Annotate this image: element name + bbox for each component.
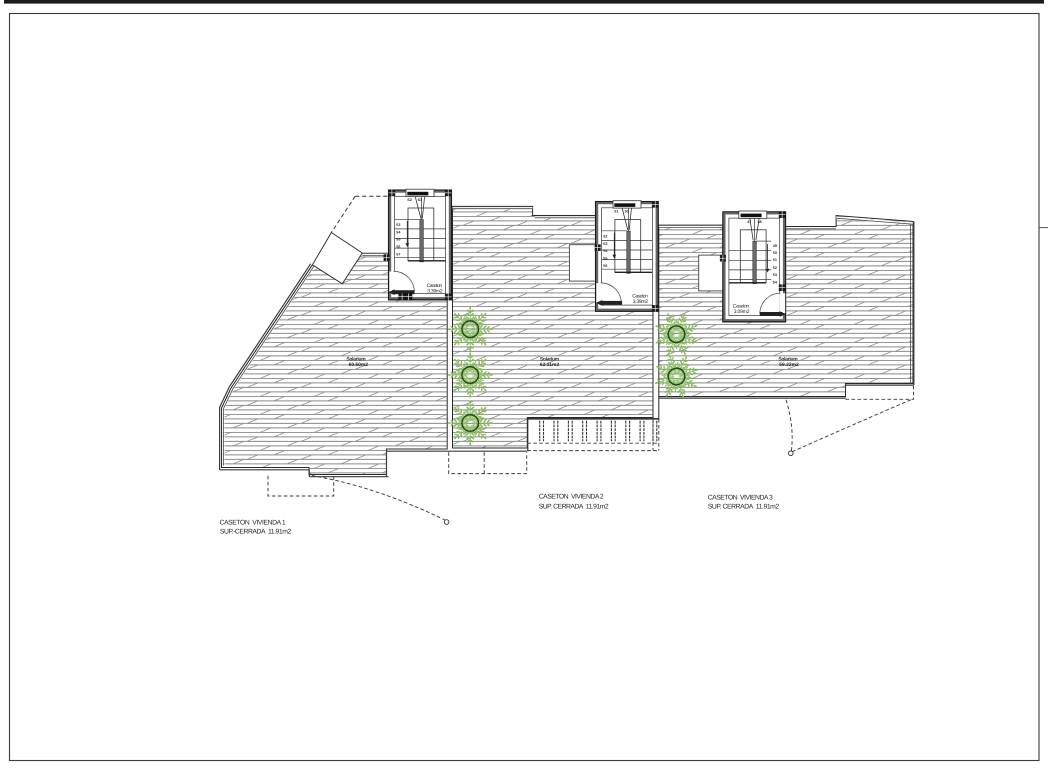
svg-text:57: 57 [396, 252, 400, 256]
svg-text:Solarium: Solarium [778, 357, 798, 363]
svg-text:51: 51 [773, 258, 777, 262]
svg-text:SUP. CERRADA 11.91m2: SUP. CERRADA 11.91m2 [708, 503, 780, 510]
svg-text:CASETON VIVIENDA 2: CASETON VIVIENDA 2 [539, 494, 604, 501]
svg-text:59.22m2: 59.22m2 [779, 362, 799, 368]
svg-text:51: 51 [614, 209, 618, 213]
svg-text:55: 55 [603, 257, 607, 261]
svg-text:50: 50 [773, 251, 777, 255]
svg-text:53: 53 [396, 223, 400, 227]
svg-text:3.39m2: 3.39m2 [427, 289, 442, 295]
svg-text:55: 55 [396, 237, 400, 241]
svg-text:62.11m2: 62.11m2 [540, 362, 560, 368]
svg-text:48: 48 [758, 220, 762, 224]
svg-text:53: 53 [603, 242, 607, 246]
svg-text:56: 56 [603, 264, 607, 268]
svg-text:47: 47 [747, 220, 751, 224]
svg-text:52: 52 [603, 235, 607, 239]
svg-text:SUP. CERRADA 11.91m2: SUP. CERRADA 11.91m2 [539, 504, 609, 511]
svg-text:SUP.-CERRADA 11.91m2: SUP.-CERRADA 11.91m2 [220, 529, 292, 536]
svg-text:CASETON VIVIENDA 1: CASETON VIVIENDA 1 [220, 519, 286, 526]
svg-text:60.50m2: 60.50m2 [349, 362, 369, 368]
svg-text:CASETON VIVIENDA 3: CASETON VIVIENDA 3 [708, 495, 773, 502]
svg-text:3.39m2: 3.39m2 [633, 299, 648, 305]
svg-text:S1: S1 [418, 198, 423, 202]
svg-text:49: 49 [773, 244, 777, 248]
svg-text:53: 53 [773, 273, 777, 277]
svg-text:S2: S2 [407, 198, 412, 202]
svg-text:50: 50 [625, 209, 629, 213]
svg-text:Solarium: Solarium [540, 357, 560, 363]
svg-text:Solarium: Solarium [346, 357, 366, 363]
svg-text:52: 52 [773, 266, 777, 270]
svg-text:56: 56 [396, 245, 400, 249]
svg-text:3.09m2: 3.09m2 [734, 309, 750, 315]
